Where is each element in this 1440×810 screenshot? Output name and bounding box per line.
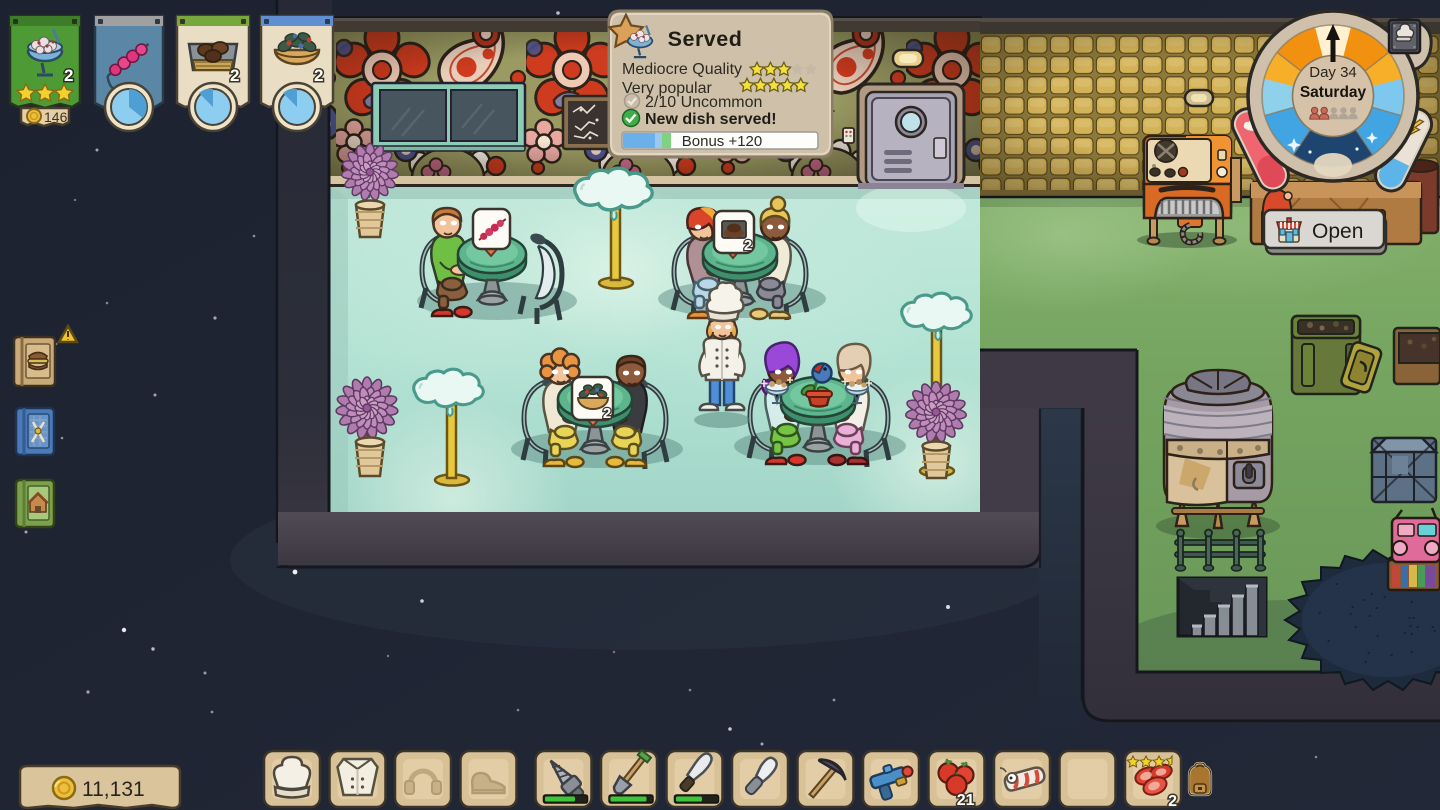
svg-text:2: 2 [314,66,323,85]
svg-text:Served: Served [668,27,743,51]
svg-text:2: 2 [64,66,73,85]
svg-text:Mediocre Quality: Mediocre Quality [622,61,742,78]
svg-text:2: 2 [603,405,611,422]
svg-text:Day 34: Day 34 [1309,64,1357,81]
svg-text:New dish served!: New dish served! [645,111,777,128]
svg-text:2/10 Uncommon: 2/10 Uncommon [645,94,762,111]
svg-text:2: 2 [744,237,752,254]
svg-text:Saturday: Saturday [1300,84,1367,101]
svg-text:11,131: 11,131 [82,778,145,801]
svg-text:21: 21 [957,792,975,809]
svg-text:2: 2 [1168,793,1177,810]
svg-text:Bonus +120: Bonus +120 [682,133,763,150]
svg-text:146: 146 [44,109,68,125]
svg-text:2: 2 [230,66,239,85]
svg-text:Open: Open [1312,220,1363,243]
